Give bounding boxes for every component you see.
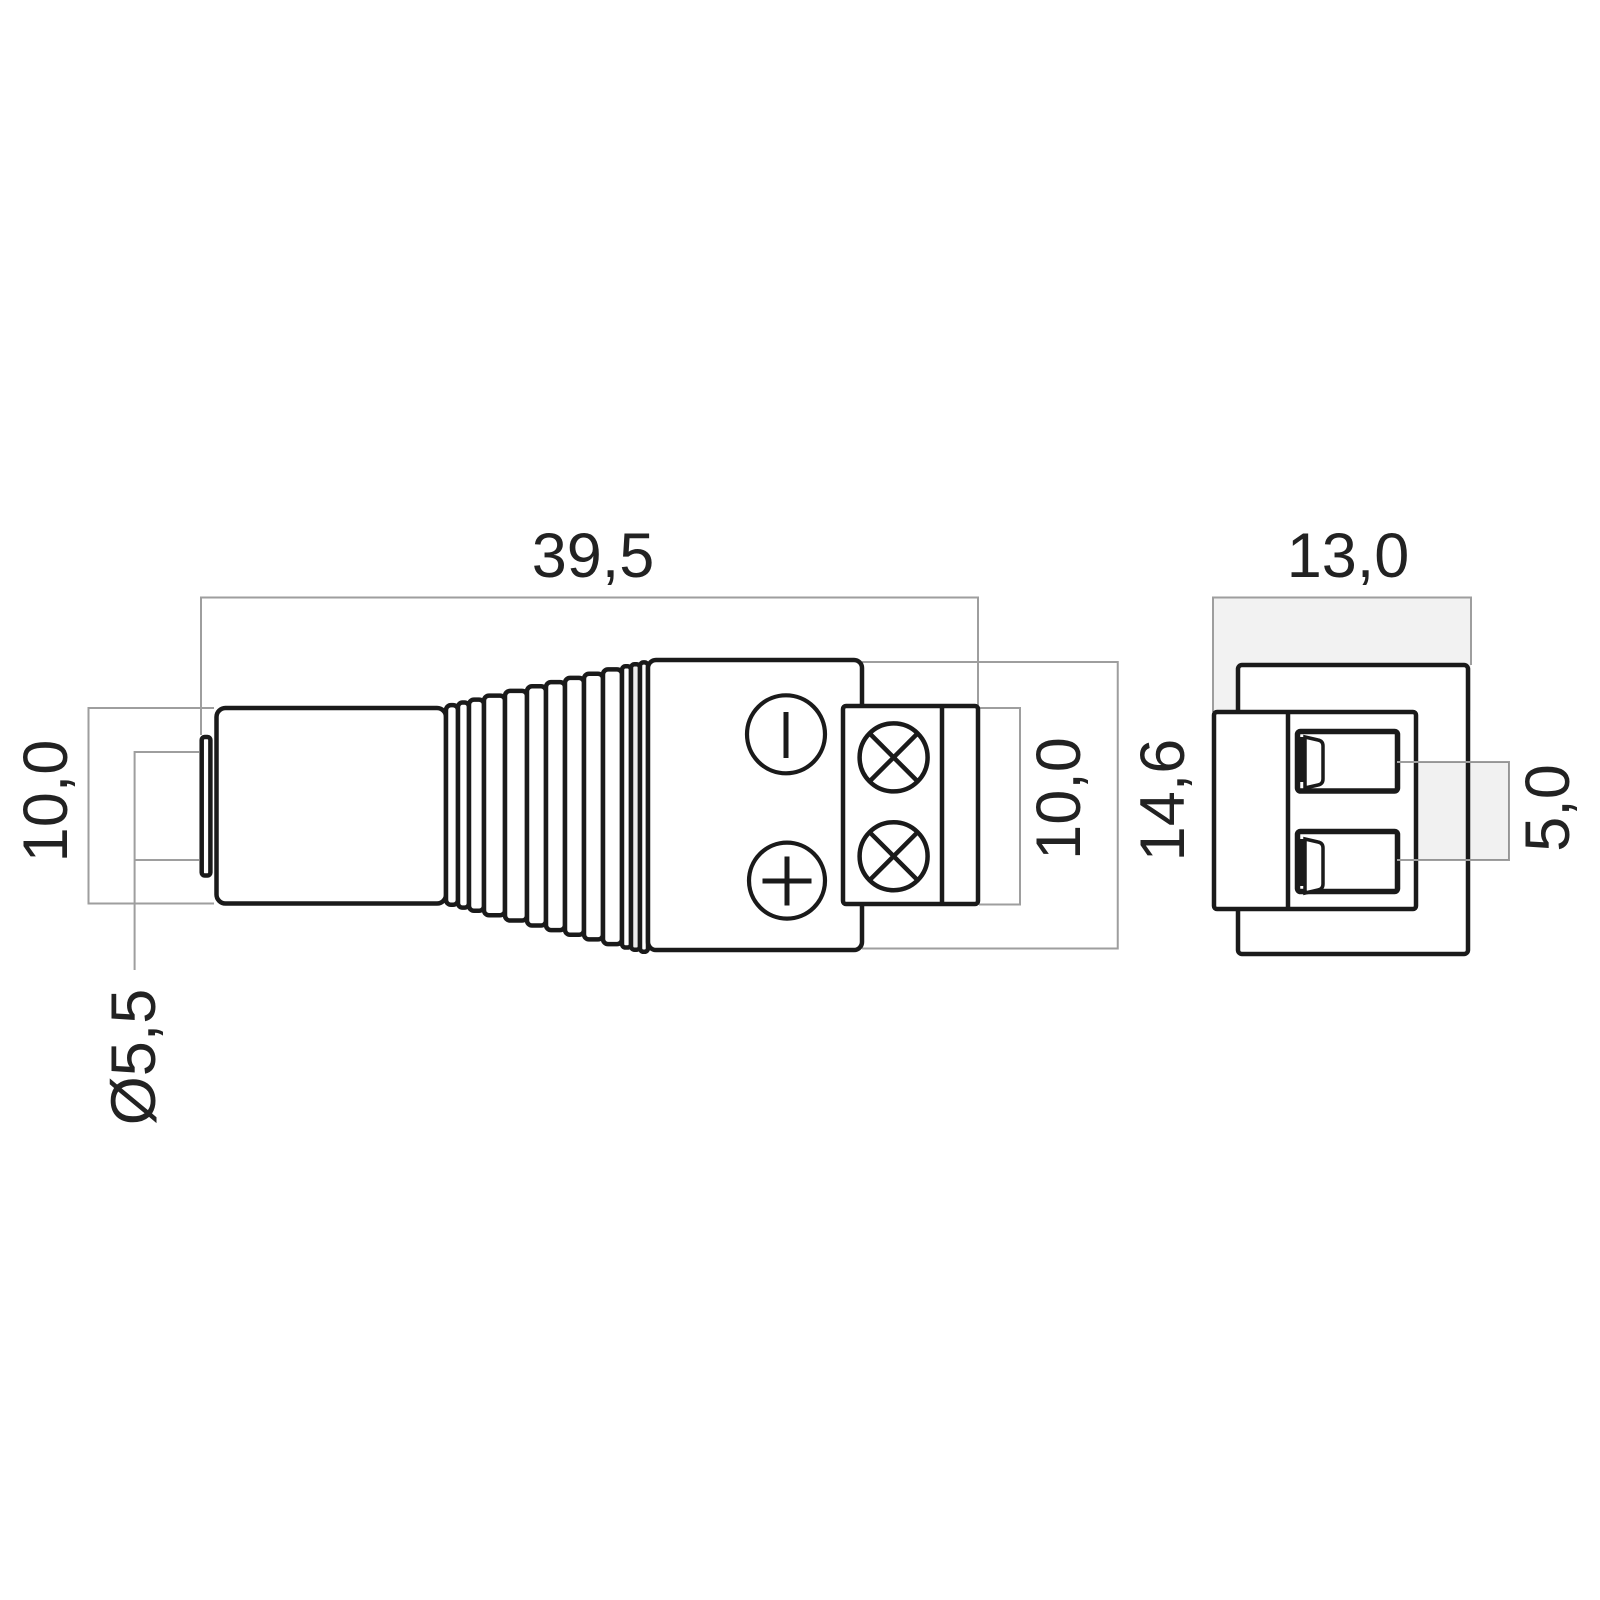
- svg-text:5,0: 5,0: [1513, 764, 1583, 852]
- svg-text:39,5: 39,5: [532, 521, 655, 591]
- svg-text:14,6: 14,6: [1128, 739, 1198, 862]
- svg-text:10,0: 10,0: [1024, 737, 1094, 860]
- svg-text:Ø5,5: Ø5,5: [99, 989, 169, 1126]
- svg-text:13,0: 13,0: [1287, 521, 1410, 591]
- svg-text:10,0: 10,0: [11, 740, 81, 863]
